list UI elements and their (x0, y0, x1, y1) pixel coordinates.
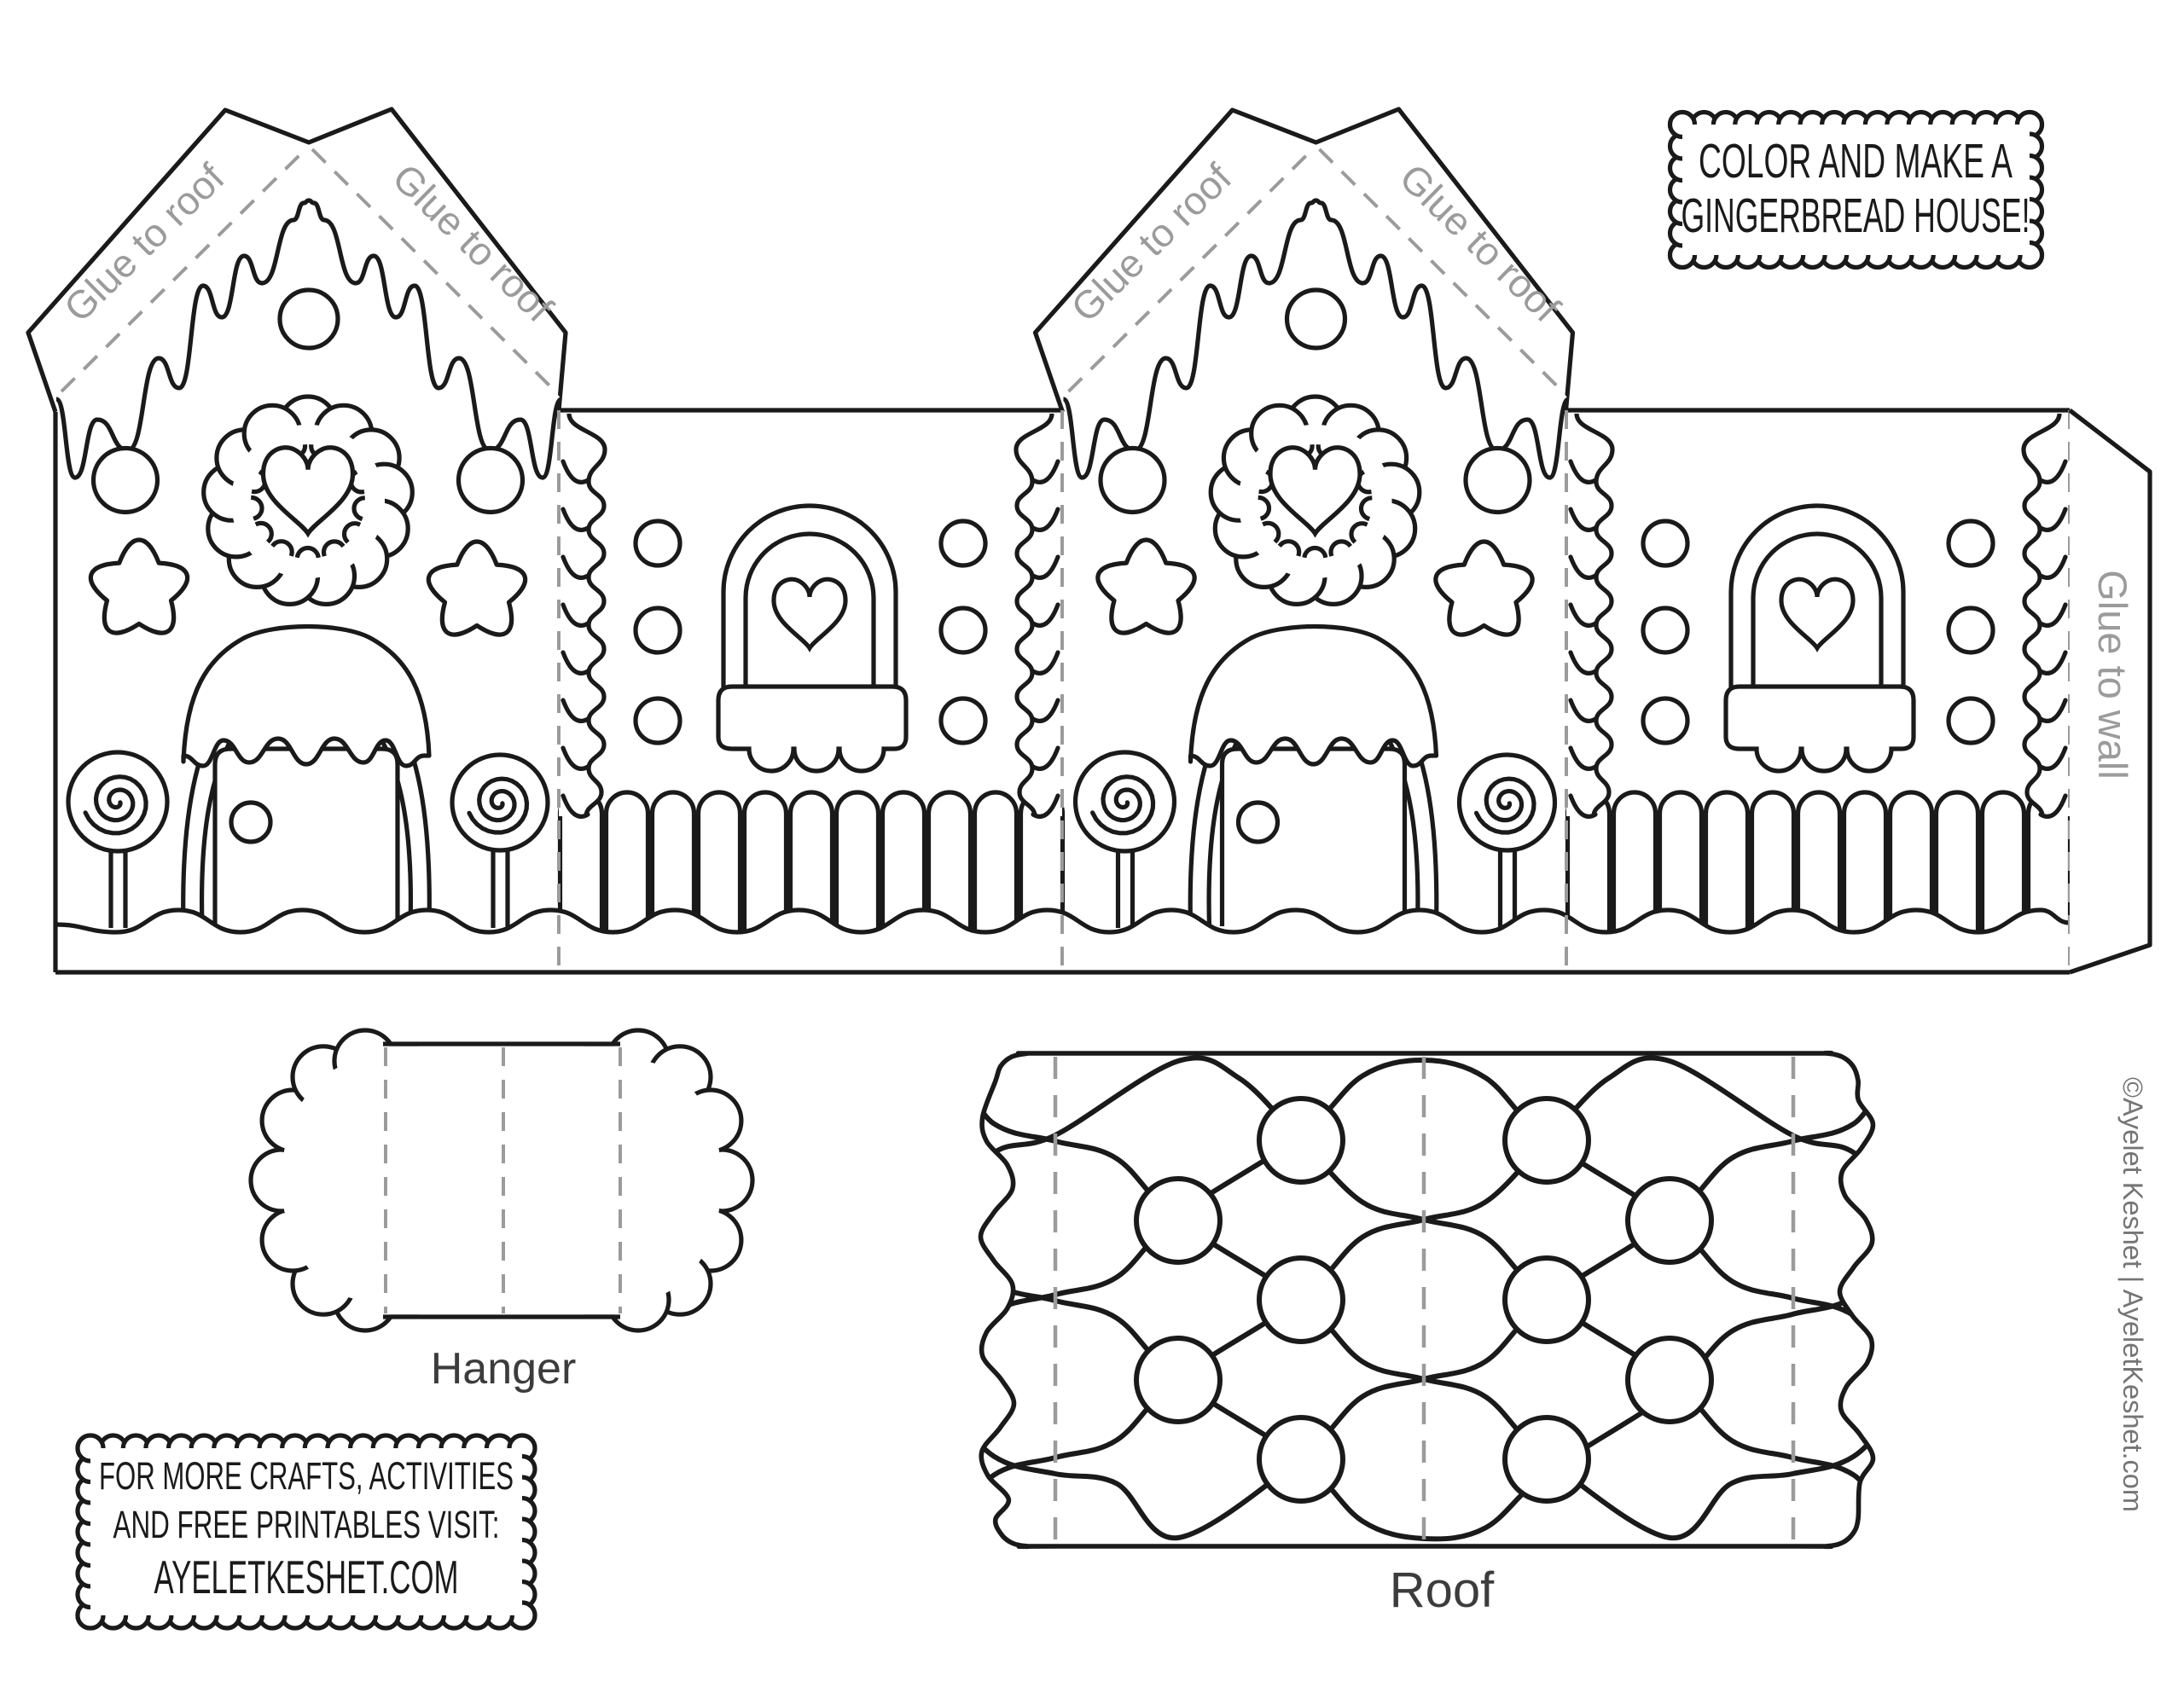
svg-text:©Ayelet Keshet | AyeletKeshet.: ©Ayelet Keshet | AyeletKeshet.com (2117, 1077, 2148, 1512)
svg-text:AND FREE PRINTABLES VISIT:: AND FREE PRINTABLES VISIT: (113, 1503, 500, 1546)
svg-text:Roof: Roof (1390, 1562, 1495, 1618)
svg-text:COLOR AND MAKE A: COLOR AND MAKE A (1699, 134, 2013, 188)
svg-text:Hanger: Hanger (431, 1344, 577, 1394)
svg-text:Glue to wall: Glue to wall (2090, 570, 2135, 780)
svg-text:AYELETKESHET.COM: AYELETKESHET.COM (154, 1551, 459, 1603)
svg-text:FOR MORE CRAFTS, ACTIVITIES: FOR MORE CRAFTS, ACTIVITIES (99, 1454, 514, 1498)
svg-text:GINGERBREAD HOUSE!: GINGERBREAD HOUSE! (1682, 188, 2030, 243)
